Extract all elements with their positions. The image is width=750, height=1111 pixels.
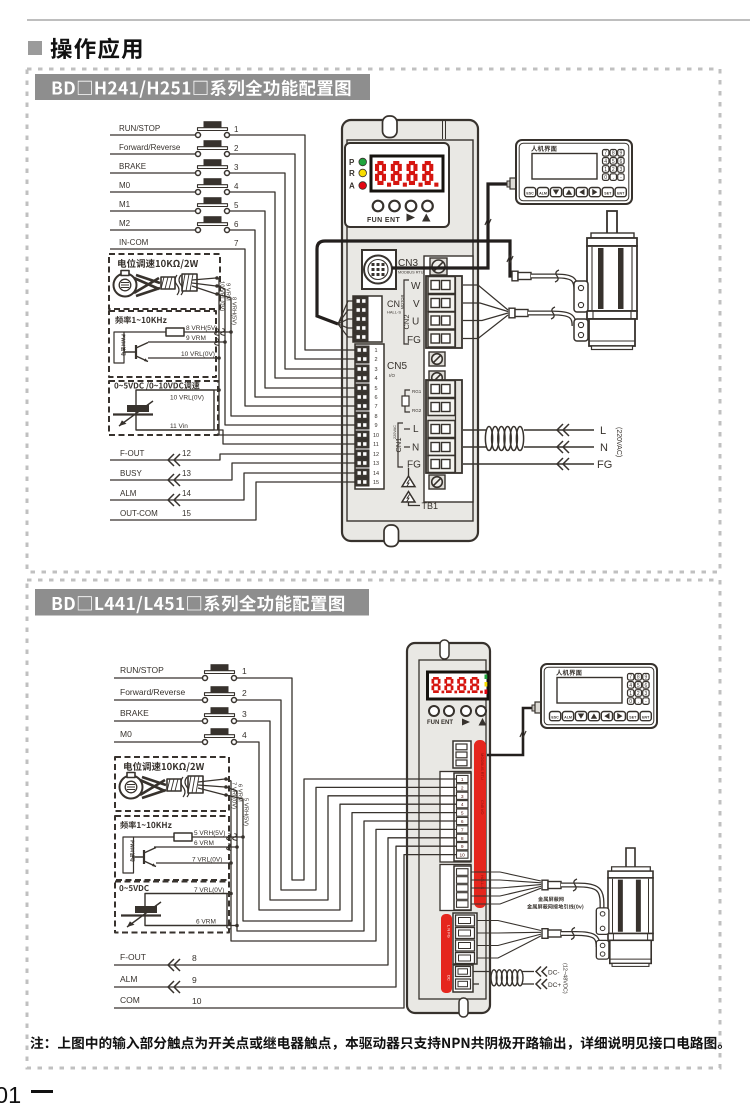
svg-text:15: 15: [373, 480, 379, 486]
svg-text:4: 4: [234, 182, 239, 191]
svg-text:(220VAC): (220VAC): [615, 427, 622, 457]
svg-text:15: 15: [182, 509, 191, 518]
svg-text:RUN/STOP: RUN/STOP: [119, 124, 160, 133]
svg-text:13: 13: [182, 469, 191, 478]
svg-text:3: 3: [242, 709, 247, 719]
svg-text:8: 8: [461, 836, 464, 842]
svg-text:9: 9: [374, 423, 377, 429]
svg-text:M0: M0: [120, 729, 132, 739]
svg-text:11 Vin: 11 Vin: [170, 423, 188, 430]
svg-text:3: 3: [461, 794, 464, 800]
svg-text:7: 7: [461, 827, 464, 833]
svg-text:FUN ENT: FUN ENT: [427, 720, 453, 726]
svg-text:13: 13: [373, 461, 379, 467]
svg-text:8: 8: [374, 414, 377, 420]
svg-text:11: 11: [373, 442, 379, 448]
svg-text:ALM: ALM: [120, 974, 137, 984]
svg-text:2: 2: [242, 688, 247, 698]
svg-text:DC+: DC+: [548, 982, 561, 989]
svg-text:6 VRM: 6 VRM: [194, 840, 214, 847]
svg-text:1: 1: [374, 348, 377, 354]
svg-text:DC-: DC-: [548, 970, 560, 977]
svg-text:MODBUS RTU: MODBUS RTU: [480, 753, 485, 780]
svg-text:7 VRL(0V): 7 VRL(0V): [192, 857, 222, 864]
svg-text:ALM: ALM: [120, 489, 137, 498]
svg-text:10 VRL(0V): 10 VRL(0V): [181, 351, 215, 358]
svg-text:10 VRL(0V): 10 VRL(0V): [170, 395, 204, 402]
svg-text:MOTOR: MOTOR: [400, 294, 405, 309]
svg-text:FG: FG: [407, 335, 421, 346]
svg-text:2: 2: [234, 144, 239, 153]
svg-text:9: 9: [192, 975, 197, 985]
svg-text:FUN ENT: FUN ENT: [367, 217, 400, 224]
svg-text:8 VRH(5V): 8 VRH(5V): [186, 325, 217, 332]
svg-text:BUSY: BUSY: [120, 469, 142, 478]
svg-text:OUT-COM: OUT-COM: [120, 509, 158, 518]
svg-text:4: 4: [461, 802, 464, 808]
svg-text:CN5 I/O: CN5 I/O: [480, 800, 485, 814]
svg-text:RG2: RG2: [412, 408, 422, 413]
svg-text:12: 12: [182, 449, 191, 458]
svg-text:DC: DC: [447, 975, 452, 981]
svg-text:Forward/Reverse: Forward/Reverse: [119, 143, 181, 152]
svg-text:I/O: I/O: [389, 373, 396, 378]
svg-text:6: 6: [374, 395, 377, 401]
svg-text:HALL-S: HALL-S: [480, 875, 485, 889]
svg-text:TB1: TB1: [422, 501, 439, 511]
svg-text:L: L: [600, 425, 606, 437]
svg-text:6: 6: [461, 819, 464, 825]
svg-text:RUN/STOP: RUN/STOP: [120, 665, 164, 675]
svg-text:F-OUT: F-OUT: [120, 449, 145, 458]
svg-text:CN2: CN2: [402, 314, 411, 329]
svg-text:V: V: [413, 299, 420, 310]
svg-text:N: N: [600, 442, 608, 454]
svg-text:2: 2: [461, 785, 464, 791]
svg-text:L N FG: L N FG: [447, 925, 452, 938]
svg-text:M1: M1: [119, 200, 131, 209]
svg-text:2: 2: [374, 357, 377, 363]
svg-text:9: 9: [461, 844, 464, 850]
svg-text:1: 1: [242, 666, 247, 676]
svg-text:10: 10: [460, 853, 466, 859]
svg-text:FG: FG: [597, 459, 612, 471]
svg-text:8: 8: [192, 953, 197, 963]
svg-text:BRAKE: BRAKE: [120, 708, 149, 718]
svg-text:10: 10: [373, 433, 379, 439]
svg-text:U: U: [412, 317, 419, 328]
svg-text:14: 14: [182, 489, 191, 498]
svg-text:1: 1: [234, 125, 239, 134]
svg-text:6 VRM: 6 VRM: [196, 919, 216, 926]
svg-text:M0: M0: [119, 181, 131, 190]
svg-text:N: N: [412, 443, 419, 454]
svg-text:5: 5: [374, 386, 377, 392]
svg-text:P: P: [349, 158, 355, 167]
svg-text:A: A: [349, 182, 355, 191]
svg-text:IN-COM: IN-COM: [119, 238, 149, 247]
svg-text:L: L: [413, 424, 419, 435]
svg-text:Forward/Reverse: Forward/Reverse: [120, 687, 185, 697]
svg-text:5: 5: [461, 811, 464, 817]
svg-text:4: 4: [242, 730, 247, 740]
svg-text:5 VRH(5V): 5 VRH(5V): [194, 830, 225, 837]
svg-text:3: 3: [374, 367, 377, 373]
svg-text:7: 7: [374, 404, 377, 410]
svg-text:7 VRL(0V): 7 VRL(0V): [194, 887, 224, 894]
svg-text:1: 1: [461, 777, 464, 783]
svg-text:12: 12: [373, 452, 379, 458]
svg-text:(12~48VDC): (12~48VDC): [562, 963, 568, 994]
svg-text:R: R: [349, 169, 355, 178]
svg-text:14: 14: [373, 471, 379, 477]
svg-text:MODBUS RTU: MODBUS RTU: [398, 271, 424, 275]
svg-text:CN: CN: [387, 299, 400, 309]
svg-text:CN5: CN5: [387, 361, 407, 372]
svg-text:RG1: RG1: [412, 389, 422, 394]
svg-text:10: 10: [192, 996, 202, 1006]
svg-text:7: 7: [234, 239, 239, 248]
svg-text:W: W: [411, 281, 421, 292]
svg-text:3: 3: [234, 163, 239, 172]
svg-text:220VAC: 220VAC: [393, 425, 397, 439]
svg-text:COM: COM: [120, 995, 140, 1005]
svg-text:BRAKE: BRAKE: [119, 162, 146, 171]
svg-text:6: 6: [234, 220, 239, 229]
svg-text:F-OUT: F-OUT: [120, 952, 146, 962]
svg-text:4: 4: [374, 376, 377, 382]
svg-text:9 VRM: 9 VRM: [186, 335, 206, 342]
svg-text:5: 5: [234, 201, 239, 210]
svg-text:M2: M2: [119, 219, 131, 228]
svg-text:01: 01: [0, 1082, 21, 1108]
